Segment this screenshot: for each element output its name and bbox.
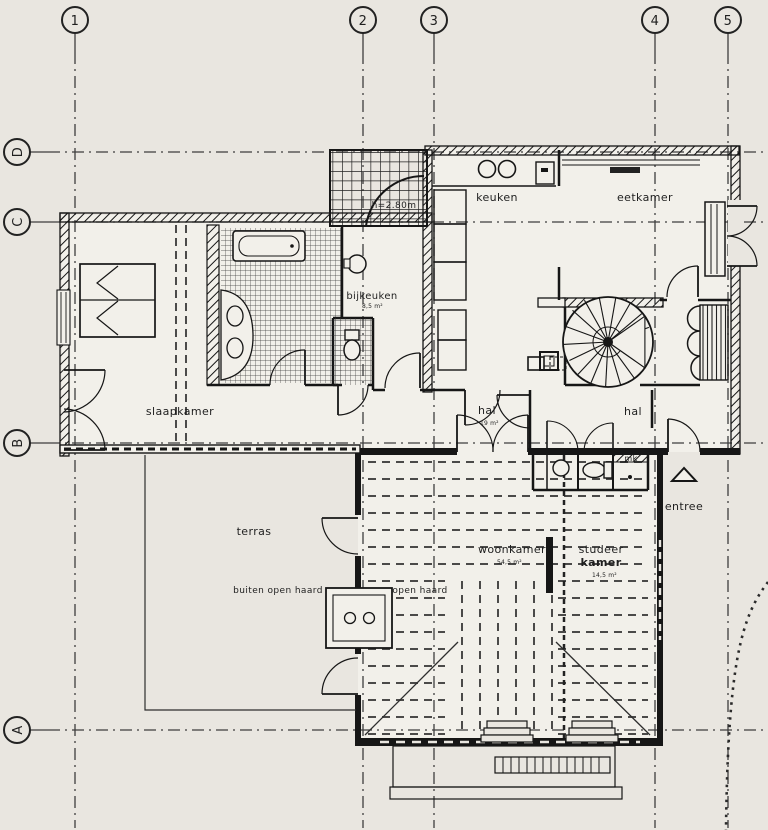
grid-marker-4-label: 4: [651, 14, 660, 29]
wall-kitchen-west: [423, 150, 432, 392]
label-terras: terras: [237, 525, 272, 538]
living-room-pillar: [546, 537, 553, 593]
step: [484, 728, 530, 735]
label-studeer-1: studeer: [579, 543, 624, 556]
grid-marker-D-label: D: [11, 147, 26, 157]
wall-woonkamer-east: [657, 452, 663, 742]
bedroom-window: [57, 290, 70, 345]
label-slaapkamer: slaapkamer: [146, 405, 214, 418]
label-entree: entree: [665, 500, 703, 513]
grid-marker-D: D: [4, 139, 30, 165]
closet-shelves: [700, 305, 728, 380]
label-bijkeuken: bijkeuken: [346, 291, 397, 302]
washbasin-1: [227, 306, 243, 326]
grid-marker-C: C: [4, 209, 30, 235]
label-keuken: keuken: [476, 191, 518, 204]
wall-bath-west: [207, 225, 219, 385]
grid-marker-4: 4: [642, 7, 668, 33]
grid-marker-3-label: 3: [430, 14, 439, 29]
toilet: [344, 340, 360, 360]
wall-hal-south-3: [700, 448, 740, 455]
wall-north-bedroom: [60, 213, 432, 222]
grid-marker-A: A: [4, 717, 30, 743]
grid-marker-1: 1: [62, 7, 88, 33]
wc-basin: [553, 460, 569, 476]
floor-plan-drawing: 1 2 3 4 5 D C B A: [0, 0, 768, 830]
spiral-stair: [563, 297, 653, 387]
wall-north-kitchen: [425, 146, 739, 155]
grid-marker-B: B: [4, 430, 30, 456]
floor-plan-sheet: 1 2 3 4 5 D C B A: [0, 0, 768, 830]
label-hal-west: hal: [478, 404, 496, 417]
label-height: h=2.80m: [372, 201, 417, 211]
grid-marker-2: 2: [350, 7, 376, 33]
grid-marker-A-label: A: [11, 725, 26, 734]
label-hal-east: hal: [624, 405, 642, 418]
label-woonkamer-area: 54,5 m²: [497, 559, 522, 566]
grid-marker-1-label: 1: [71, 14, 80, 29]
east-window: [705, 202, 725, 276]
grid-marker-3: 3: [421, 7, 447, 33]
grid-marker-B-label: B: [11, 438, 26, 447]
wall-stub: [538, 298, 565, 307]
grid-marker-2-label: 2: [359, 14, 368, 29]
grid-marker-C-label: C: [11, 217, 26, 226]
step: [487, 721, 527, 728]
wall-east: [731, 146, 740, 454]
label-woonkamer: woonkamer: [478, 543, 546, 556]
step: [569, 728, 615, 735]
step: [566, 735, 618, 742]
wall-woonkamer-west-1: [355, 452, 361, 515]
stair-post: [603, 337, 613, 347]
label-open-haard: open haard: [392, 586, 447, 596]
label-mk: mk: [624, 454, 637, 463]
grid-marker-5-label: 5: [724, 14, 733, 29]
fireplace: [326, 588, 392, 648]
label-studeer-area: 14,5 m²: [592, 572, 617, 579]
wc-toilet: [583, 463, 605, 478]
grid-marker-5: 5: [715, 7, 741, 33]
utility-sink: [348, 255, 366, 273]
wc-toilet-tank: [604, 462, 612, 478]
step: [572, 721, 612, 728]
label-studeer-2: kamer: [580, 556, 621, 569]
wall-woonkamer-west-3: [355, 695, 361, 742]
kitchen-appliance: [536, 162, 554, 184]
wall-hal-south-1: [356, 448, 457, 455]
label-hal-west-area: 19 m²: [480, 420, 499, 427]
small-label-bar: [610, 167, 640, 173]
toilet-tank: [345, 330, 359, 340]
label-bijkeuken-area: 8,5 m²: [362, 303, 383, 310]
label-eetkamer: eetkamer: [617, 191, 673, 204]
step: [481, 735, 533, 742]
label-buiten-open-haard: buiten open haard: [233, 586, 323, 596]
washbasin-2: [227, 338, 243, 358]
